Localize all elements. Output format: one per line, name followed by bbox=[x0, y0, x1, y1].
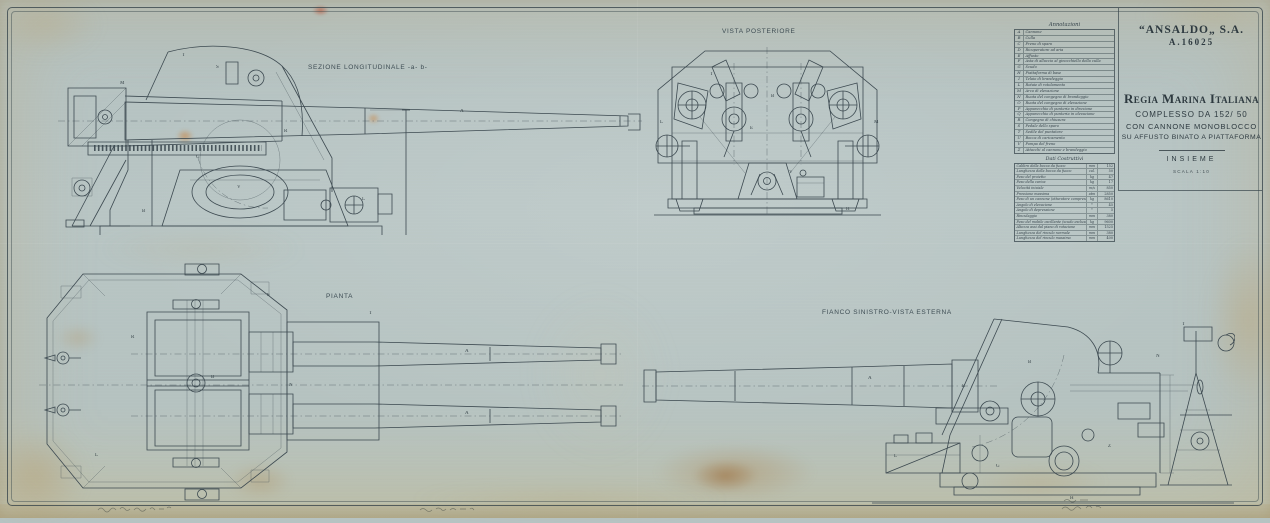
legend-panel: Annotazioni ACannoneBCullaCFreno di spar… bbox=[1014, 22, 1115, 242]
handwritten-note-center bbox=[418, 504, 478, 514]
title-regia-marina: Regia Marina Italiana bbox=[1120, 91, 1263, 107]
callout-letter: G bbox=[196, 155, 200, 160]
handwritten-note-right bbox=[1058, 496, 1118, 514]
dati-row: Lunghezza del rinculo massimomm400 bbox=[1015, 236, 1114, 241]
title-block: “ANSALDO„ S.A. A.16025 Regia Marina Ital… bbox=[1120, 0, 1263, 174]
callout-letter: T bbox=[182, 53, 185, 58]
legend-row: ZAttacchi al cannone e brandeggio bbox=[1015, 148, 1114, 153]
blueprint-sheet: { "header": { "company": "“ANSALDO„ S.A.… bbox=[0, 0, 1270, 518]
callout-letter: S bbox=[216, 65, 219, 70]
callout-letter: A bbox=[460, 109, 464, 114]
title-scala: SCALA 1:10 bbox=[1120, 169, 1263, 174]
callout-letter: A bbox=[465, 349, 469, 354]
callout-letter: A bbox=[465, 411, 469, 416]
dati-costruttivi-title: Dati Costruttivi bbox=[1014, 157, 1115, 162]
title-complesso: COMPLESSO DA 152/ 50 bbox=[1120, 110, 1263, 119]
callout-letter: N bbox=[289, 383, 293, 388]
legend-items: ACannoneBCullaCFreno di sparoDRicuperato… bbox=[1014, 29, 1115, 154]
drawing-sezione-longitudinale: TSARGVLBM bbox=[30, 40, 645, 235]
callout-letter: L bbox=[95, 453, 98, 458]
drawing-pianta: STAABRNL bbox=[35, 262, 625, 502]
callout-letter: R bbox=[131, 335, 135, 340]
callout-letter: V bbox=[789, 170, 793, 175]
drawing-fianco-sinistro: AEBZGLTNH bbox=[640, 315, 1235, 507]
callout-letter: V bbox=[237, 185, 241, 190]
callout-letter: Z bbox=[1108, 444, 1111, 449]
title-insieme: INSIEME bbox=[1120, 156, 1263, 163]
callout-letter: E bbox=[962, 384, 965, 389]
callout-letter: L bbox=[894, 454, 897, 459]
callout-letter: T bbox=[710, 72, 713, 77]
callout-letter: G bbox=[996, 464, 1000, 469]
callout-letter: M bbox=[120, 81, 125, 86]
callout-letter: R bbox=[284, 129, 288, 134]
callout-letter: A bbox=[868, 376, 872, 381]
callout-letter: M bbox=[874, 120, 879, 125]
callout-letter: L bbox=[660, 120, 663, 125]
callout-letter: N bbox=[1156, 354, 1160, 359]
legend-title: Annotazioni bbox=[1014, 22, 1115, 28]
title-affusto: SU AFFUSTO BINATO A PIATTAFORMA bbox=[1120, 134, 1263, 141]
label-vista-posteriore: VISTA POSTERIORE bbox=[722, 28, 796, 35]
callout-letter: L bbox=[362, 197, 365, 202]
callout-letter: B bbox=[142, 209, 146, 214]
callout-letter: B bbox=[1028, 360, 1032, 365]
handwritten-note-left bbox=[96, 503, 176, 515]
dati-costruttivi-table: Calibro della bocca da fuocomm152Lunghez… bbox=[1014, 163, 1115, 242]
drawing-number: A.16025 bbox=[1120, 37, 1263, 47]
callout-letter: B bbox=[771, 94, 775, 99]
titleblock-divider-horizontal bbox=[1118, 190, 1262, 191]
callout-letter: H bbox=[846, 207, 850, 212]
company-name: “ANSALDO„ S.A. bbox=[1120, 24, 1263, 36]
titleblock-divider-vertical bbox=[1118, 8, 1119, 190]
drawing-vista-posteriore: BETLMVH bbox=[650, 45, 885, 220]
callout-letter: S bbox=[267, 293, 270, 298]
title-rule bbox=[1159, 150, 1225, 151]
title-cannone: CON CANNONE MONOBLOCCO bbox=[1120, 122, 1263, 131]
callout-letter: T bbox=[1182, 322, 1185, 327]
callout-letter: E bbox=[750, 126, 753, 131]
callout-letter: T bbox=[369, 311, 372, 316]
